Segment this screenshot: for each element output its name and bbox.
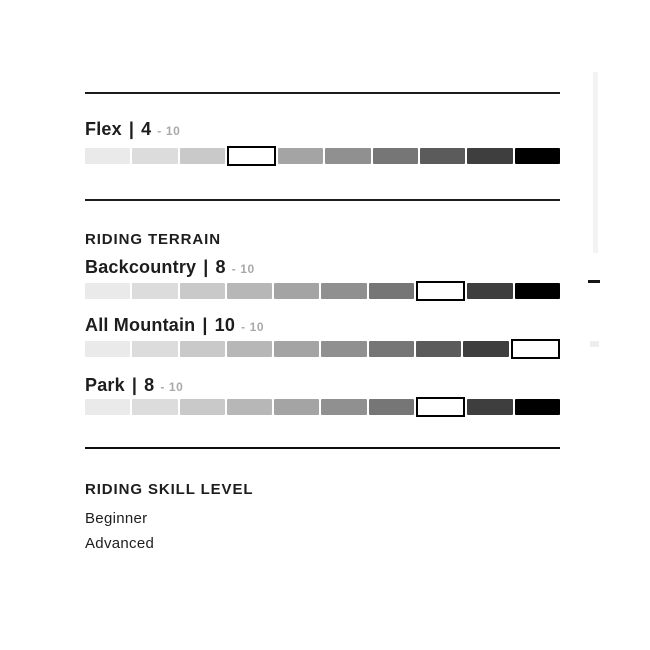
divider-middle: [85, 199, 560, 201]
park-rating-bar: [85, 399, 560, 415]
flex-label-row: Flex | 4 - 10: [85, 119, 180, 140]
rating-segment-selected: [227, 146, 276, 166]
riding-skill-level-heading: RIDING SKILL LEVEL: [85, 481, 253, 498]
label-separator: |: [132, 375, 137, 396]
label-separator: |: [203, 257, 208, 278]
all-mountain-value: 10: [215, 315, 235, 336]
rating-segment-selected: [511, 339, 560, 359]
right-edge-artifact-strip: [593, 72, 598, 253]
rating-segment: [369, 399, 414, 415]
rating-segment: [85, 341, 130, 357]
divider-bottom: [85, 447, 560, 449]
scale-max-suffix: - 10: [157, 124, 180, 138]
rating-segment: [227, 399, 272, 415]
rating-segment: [278, 148, 323, 164]
scale-max-suffix: - 10: [232, 262, 255, 276]
rating-segment: [85, 399, 130, 415]
rating-segment: [132, 341, 177, 357]
skill-item-advanced: Advanced: [85, 535, 154, 552]
rating-segment: [85, 283, 130, 299]
rating-segment: [180, 341, 225, 357]
all-mountain-label: All Mountain: [85, 315, 195, 336]
rating-segment: [515, 399, 560, 415]
rating-segment: [373, 148, 418, 164]
rating-segment-selected: [416, 397, 465, 417]
rating-segment: [325, 148, 370, 164]
specs-content: Flex | 4 - 10 RIDING TERRAIN Backcountry…: [85, 0, 560, 650]
flex-rating-bar: [85, 148, 560, 164]
rating-segment: [132, 283, 177, 299]
skill-item-beginner: Beginner: [85, 510, 147, 527]
backcountry-rating-bar: [85, 283, 560, 299]
rating-segment: [515, 148, 560, 164]
flex-value: 4: [141, 119, 151, 140]
divider-top: [85, 92, 560, 94]
label-separator: |: [129, 119, 134, 140]
riding-terrain-heading: RIDING TERRAIN: [85, 231, 221, 248]
rating-segment: [416, 341, 461, 357]
backcountry-label: Backcountry: [85, 257, 196, 278]
rating-segment: [369, 283, 414, 299]
rating-segment: [321, 283, 366, 299]
park-value: 8: [144, 375, 154, 396]
rating-segment: [369, 341, 414, 357]
park-label: Park: [85, 375, 125, 396]
backcountry-label-row: Backcountry | 8 - 10: [85, 257, 255, 278]
rating-segment: [227, 283, 272, 299]
flex-label: Flex: [85, 119, 122, 140]
right-edge-artifact-mark: [590, 341, 599, 347]
backcountry-value: 8: [216, 257, 226, 278]
rating-segment: [467, 399, 512, 415]
right-edge-artifact-dash: [588, 280, 600, 283]
rating-segment: [420, 148, 465, 164]
scale-max-suffix: - 10: [241, 320, 264, 334]
rating-segment: [132, 148, 177, 164]
rating-segment: [274, 399, 319, 415]
all-mountain-rating-bar: [85, 341, 560, 357]
all-mountain-label-row: All Mountain | 10 - 10: [85, 315, 264, 336]
rating-segment: [467, 148, 512, 164]
rating-segment-selected: [416, 281, 465, 301]
rating-segment: [180, 399, 225, 415]
rating-segment: [180, 148, 225, 164]
rating-segment: [274, 341, 319, 357]
rating-segment: [132, 399, 177, 415]
rating-segment: [180, 283, 225, 299]
rating-segment: [321, 399, 366, 415]
rating-segment: [321, 341, 366, 357]
rating-segment: [463, 341, 508, 357]
rating-segment: [467, 283, 512, 299]
label-separator: |: [202, 315, 207, 336]
park-label-row: Park | 8 - 10: [85, 375, 183, 396]
product-specs-panel: Flex | 4 - 10 RIDING TERRAIN Backcountry…: [0, 0, 650, 650]
rating-segment: [227, 341, 272, 357]
rating-segment: [274, 283, 319, 299]
scale-max-suffix: - 10: [160, 380, 183, 394]
rating-segment: [85, 148, 130, 164]
rating-segment: [515, 283, 560, 299]
